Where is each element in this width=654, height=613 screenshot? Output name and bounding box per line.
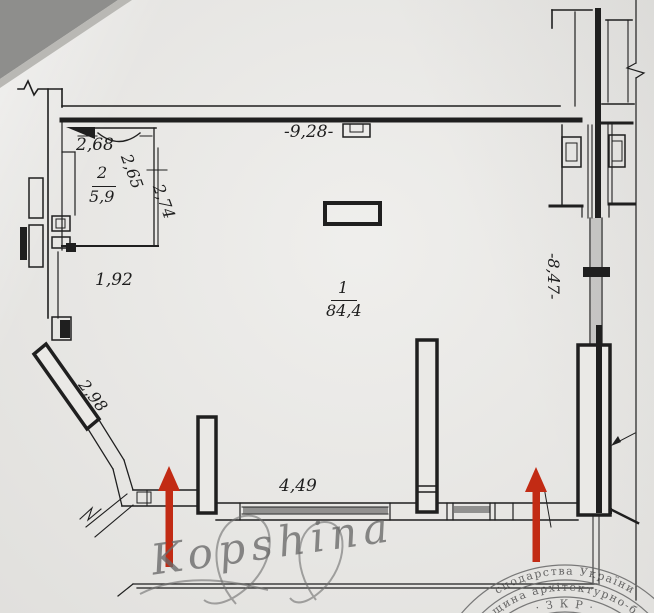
room1-area: 84,4 <box>326 303 362 319</box>
dim-bottom: 4,49 <box>279 478 317 495</box>
right-wall <box>550 0 644 600</box>
leader-arrow <box>611 436 621 446</box>
room2-area: 5,9 <box>89 189 114 205</box>
floorplan-scan: сподарства України щина архітектурно-б ·… <box>0 0 654 613</box>
dim-top-width: -9,28- <box>284 124 333 141</box>
dim-right-height: -8,47- <box>545 253 561 299</box>
room1-number: 1 <box>338 280 348 296</box>
room1-center-pier <box>325 203 380 224</box>
pier-left <box>198 417 216 513</box>
dim-room2-top: 2,68 <box>76 137 114 154</box>
page-corner-fold <box>0 0 132 88</box>
red-arrow-right <box>525 467 547 562</box>
stamp-seal: сподарства України щина архітектурно-б ·… <box>430 565 654 613</box>
svg-text:· З К Р ·: · З К Р · <box>534 597 596 613</box>
stamp-arc-inner-text: · З К Р · <box>534 597 596 613</box>
room2-number: 2 <box>97 165 107 181</box>
break-symbol-right <box>627 63 644 78</box>
diagonal-balcony-wall <box>34 344 151 537</box>
right-window-pier <box>578 345 610 515</box>
left-wall-shafts <box>20 89 76 340</box>
dim-room2-bottom: 1,92 <box>95 272 133 289</box>
